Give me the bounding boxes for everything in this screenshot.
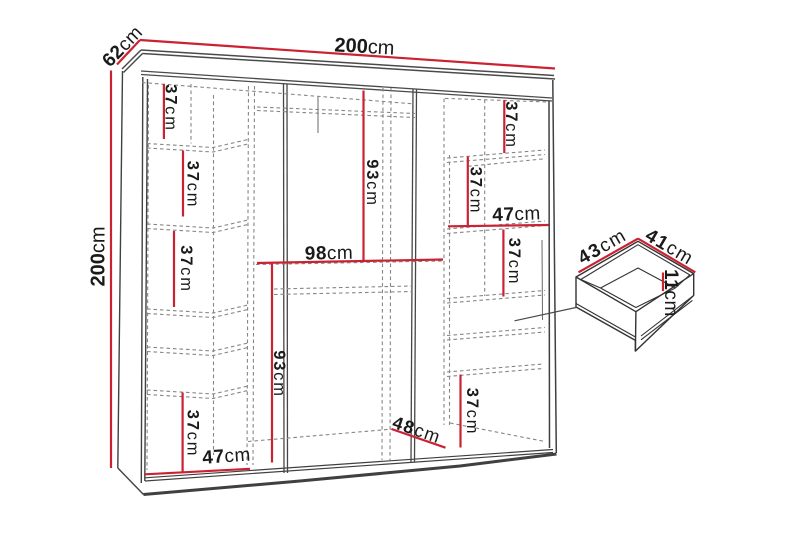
svg-text:37cm: 37cm bbox=[184, 161, 202, 209]
svg-text:98cm: 98cm bbox=[305, 243, 354, 265]
svg-text:200cm: 200cm bbox=[88, 226, 110, 286]
svg-text:37cm: 37cm bbox=[463, 388, 481, 436]
svg-text:37cm: 37cm bbox=[502, 101, 520, 149]
svg-text:37cm: 37cm bbox=[505, 238, 523, 286]
svg-text:47cm: 47cm bbox=[202, 444, 252, 468]
svg-text:37cm: 37cm bbox=[162, 84, 180, 132]
svg-text:37cm: 37cm bbox=[467, 167, 485, 215]
svg-text:93cm: 93cm bbox=[363, 159, 381, 207]
svg-text:200cm: 200cm bbox=[334, 34, 395, 59]
svg-text:37cm: 37cm bbox=[177, 245, 195, 293]
svg-text:93cm: 93cm bbox=[270, 350, 288, 398]
svg-text:11cm: 11cm bbox=[660, 269, 681, 317]
svg-text:47cm: 47cm bbox=[492, 203, 541, 226]
svg-text:37cm: 37cm bbox=[184, 410, 202, 458]
